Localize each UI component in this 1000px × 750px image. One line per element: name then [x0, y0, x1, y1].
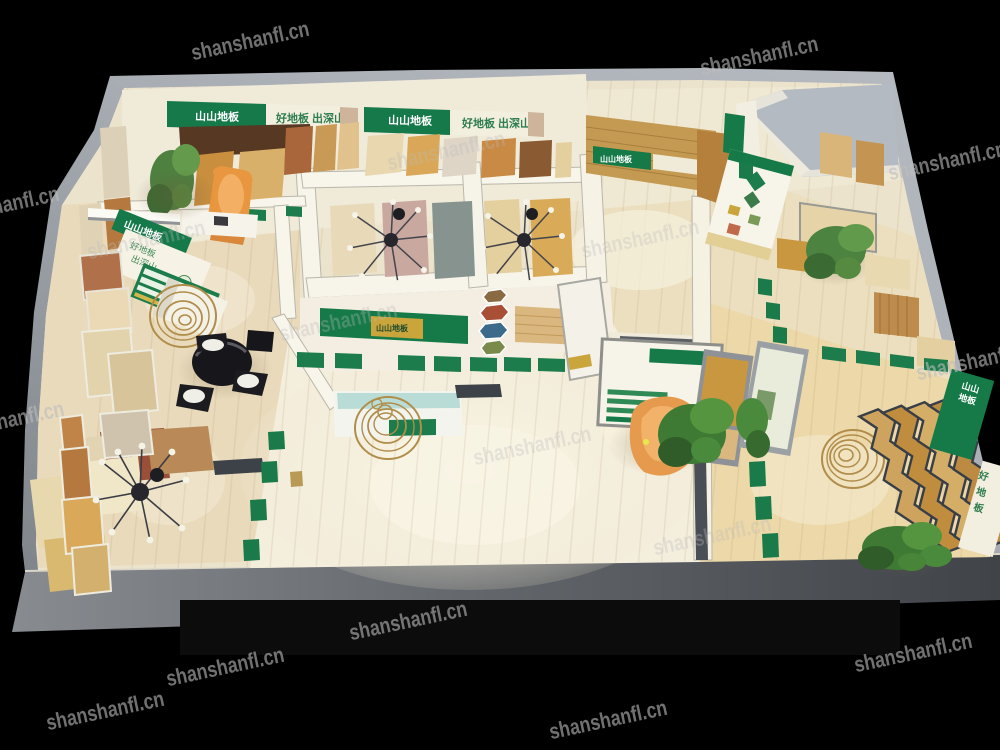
svg-text:山山地板: 山山地板 — [600, 154, 633, 164]
svg-text:好地板 出深山: 好地板 出深山 — [275, 111, 345, 125]
svg-text:山山地板: 山山地板 — [195, 109, 240, 124]
svg-text:山山地板: 山山地板 — [388, 113, 433, 128]
